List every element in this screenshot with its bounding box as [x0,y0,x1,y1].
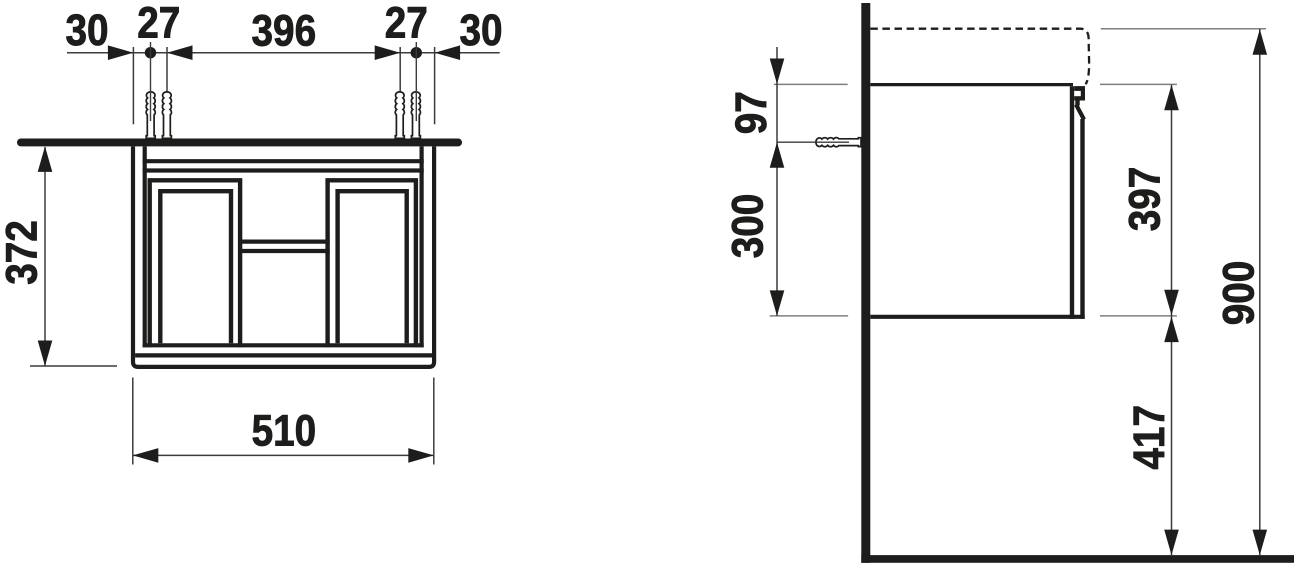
svg-text:372: 372 [0,220,47,285]
svg-text:397: 397 [1121,167,1170,232]
svg-text:97: 97 [727,91,776,134]
svg-text:510: 510 [252,407,317,456]
svg-text:27: 27 [137,0,180,48]
svg-text:300: 300 [723,194,772,259]
svg-text:27: 27 [385,0,428,48]
svg-text:417: 417 [1125,405,1174,470]
svg-text:396: 396 [251,7,316,56]
svg-text:30: 30 [459,6,502,55]
svg-text:30: 30 [65,6,108,55]
svg-text:900: 900 [1215,261,1264,326]
